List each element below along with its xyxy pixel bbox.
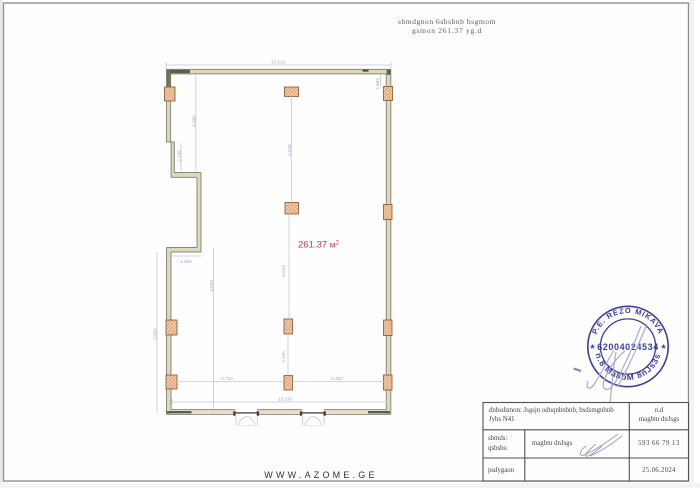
svg-text:*: * (661, 343, 666, 355)
svg-text:sbmdgnon 6sbsbnb bsgmom: sbmdgnon 6sbsbnb bsgmom (398, 17, 496, 26)
svg-text:6.615: 6.615 (281, 265, 286, 277)
svg-text:sbmds:: sbmds: (488, 435, 507, 442)
svg-text:2.235: 2.235 (281, 351, 286, 363)
svg-text:Jybs N41: Jybs N41 (489, 416, 515, 423)
svg-text:magbm dnJsgs: magbm dnJsgs (532, 440, 573, 447)
svg-text:9.965: 9.965 (153, 328, 158, 340)
svg-text:6.065: 6.065 (192, 115, 197, 127)
svg-text:6.710: 6.710 (221, 376, 233, 381)
svg-text:psdygaon: psdygaon (488, 467, 515, 474)
svg-text:13.230: 13.230 (278, 397, 292, 402)
svg-text:magbm dnJsgs: magbm dnJsgs (639, 416, 680, 423)
svg-text:25.06.2024: 25.06.2024 (642, 467, 676, 474)
svg-text:6.460: 6.460 (331, 376, 343, 381)
svg-text:qsbsbs:: qsbsbs: (488, 445, 508, 452)
svg-text:6.648: 6.648 (287, 144, 292, 156)
svg-text:n.d: n.d (655, 407, 664, 414)
svg-text:13.516: 13.516 (271, 60, 285, 65)
svg-text:WWW.AZOME.GE: WWW.AZOME.GE (264, 470, 377, 480)
svg-text:1.685: 1.685 (375, 78, 380, 90)
svg-text:gsmon 261.37 yg.d: gsmon 261.37 yg.d (412, 26, 482, 35)
svg-text:62004024534: 62004024534 (597, 342, 659, 352)
svg-text:2.136: 2.136 (177, 150, 182, 162)
svg-text:*: * (590, 343, 595, 355)
svg-text:261.37 м2: 261.37 м2 (298, 240, 340, 251)
svg-text:dnbsdsmon: Jsgsjn odnqnbnbnb,: dnbsdsmon: Jsgsjn odnqnbnbnb, bsdsmgnbnb (489, 407, 614, 414)
svg-text:593 66 79 13: 593 66 79 13 (638, 440, 680, 447)
svg-text:1.865: 1.865 (180, 259, 192, 264)
svg-text:9.880: 9.880 (209, 280, 214, 292)
